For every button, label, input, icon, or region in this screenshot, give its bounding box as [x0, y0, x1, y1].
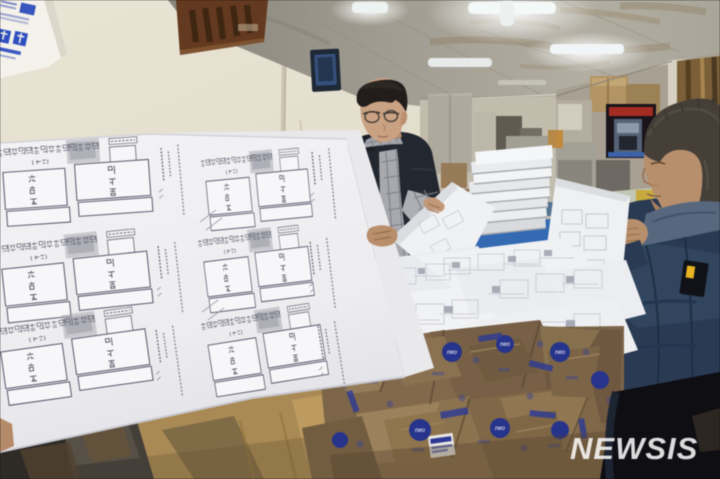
svg-text:neo: neo [495, 426, 506, 432]
svg-text:neo: neo [555, 350, 566, 356]
svg-text:neo: neo [415, 428, 426, 434]
svg-text:neo: neo [447, 350, 458, 356]
svg-text:NEWSIS: NEWSIS [570, 431, 698, 466]
svg-text:neo: neo [500, 342, 511, 348]
